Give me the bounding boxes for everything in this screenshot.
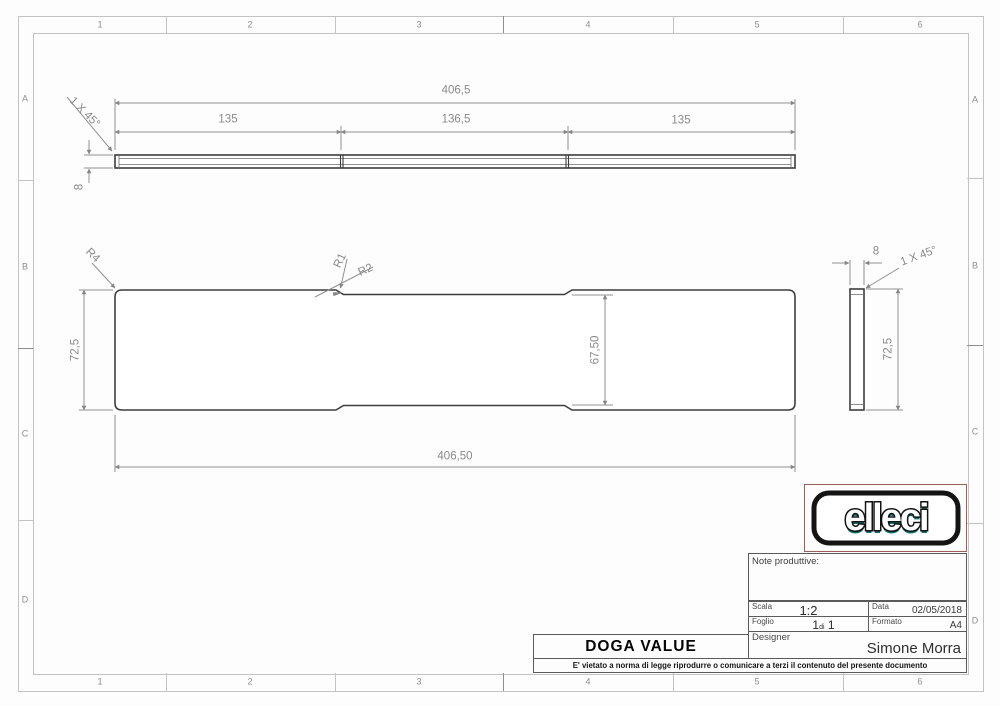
svg-text:elleci: elleci [844,497,927,539]
data-cell: Data 02/05/2018 [868,601,967,617]
designer-cell: Designer Simone Morra [748,631,967,659]
dim-plan-end-height: 72,5 [70,339,82,361]
dim-front-overall-length: 406,5 [442,85,471,97]
dim-front-thickness: 8 [74,184,86,190]
logo-box: elleci elleci [804,484,967,552]
dim-front-segment-left: 135 [218,114,237,126]
part-title: DOGA VALUE [534,638,748,656]
dim-plan-overall-length: 406,50 [437,451,472,463]
foglio-value: 1di 1 [779,618,868,632]
disclaimer-bar: E' vietato a norma di legge riprodurre o… [533,658,967,673]
scala-cell: Scala 1:2 [748,601,869,617]
disclaimer-text: E' vietato a norma di legge riprodurre o… [534,661,966,670]
note-box: Note produttive: [748,553,967,601]
formato-cell: Formato A4 [868,616,967,632]
formato-label: Formato [872,618,902,627]
elleci-logo: elleci elleci [811,490,961,546]
dim-side-width: 8 [873,246,879,258]
drawing-sheet: 1 2 3 4 5 6 1 2 3 4 5 6 A B C D A B C D [0,0,1000,706]
designer-label: Designer [752,633,790,643]
dim-front-segment-mid: 136,5 [442,114,471,126]
designer-value: Simone Morra [867,640,961,657]
data-label: Data [872,603,889,612]
formato-value: A4 [950,620,962,631]
dim-front-segment-right: 135 [671,115,690,127]
dim-side-height: 72,5 [883,338,895,360]
foglio-label: Foglio [752,618,774,627]
note-label: Note produttive: [749,554,966,569]
part-title-box: DOGA VALUE [533,634,749,659]
dim-plan-mid-height: 67,50 [590,336,602,365]
data-value: 02/05/2018 [912,605,962,616]
foglio-cell: Foglio 1di 1 [748,616,869,632]
